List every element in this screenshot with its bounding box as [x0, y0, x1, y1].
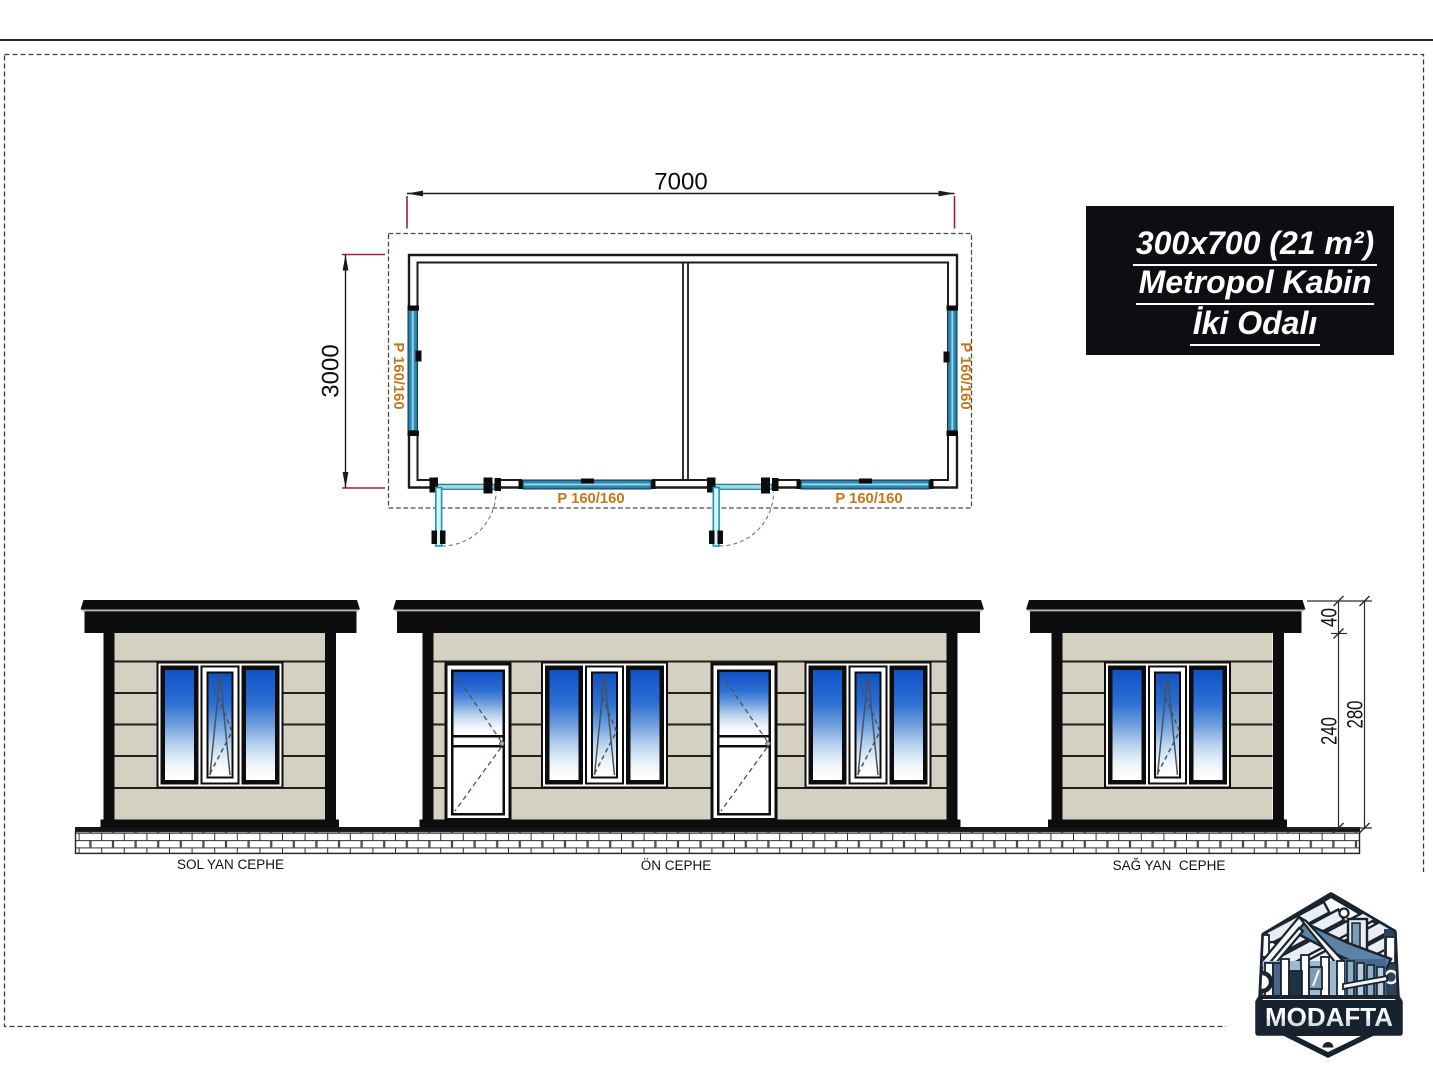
svg-text:280: 280	[1343, 701, 1368, 729]
svg-text:240: 240	[1317, 717, 1342, 745]
svg-text:40: 40	[1317, 608, 1342, 627]
svg-text:MODAFTA: MODAFTA	[1265, 1002, 1393, 1032]
